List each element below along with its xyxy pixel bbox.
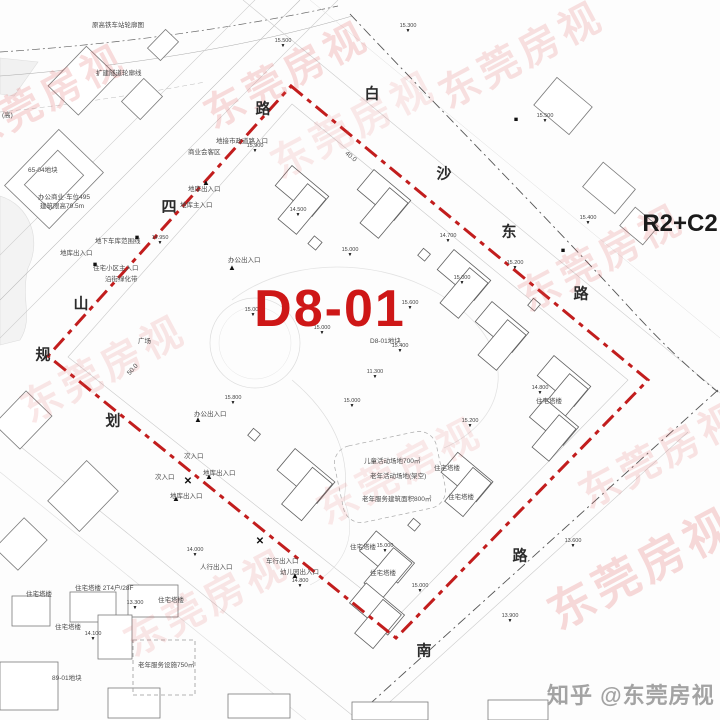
path-curve [310,500,350,585]
buildings-inside [248,166,591,649]
zhihu-credit: 知乎 @东莞房视 [547,678,715,710]
activity-area-dashed [331,428,449,526]
terrain-hatch [0,58,38,96]
site-plan-map: 东莞房视东莞房视东莞房视东莞房视东莞房视东莞房视东莞房视东莞房视东莞房视东莞房视… [0,0,720,720]
parcel-id-label: D8-01 [254,279,406,339]
road-centerline [352,390,718,720]
terrain-hatch [0,196,34,345]
zoning-label: R2+C2 [642,210,717,238]
site-plan-linework [0,0,720,720]
setback-line [68,104,628,617]
